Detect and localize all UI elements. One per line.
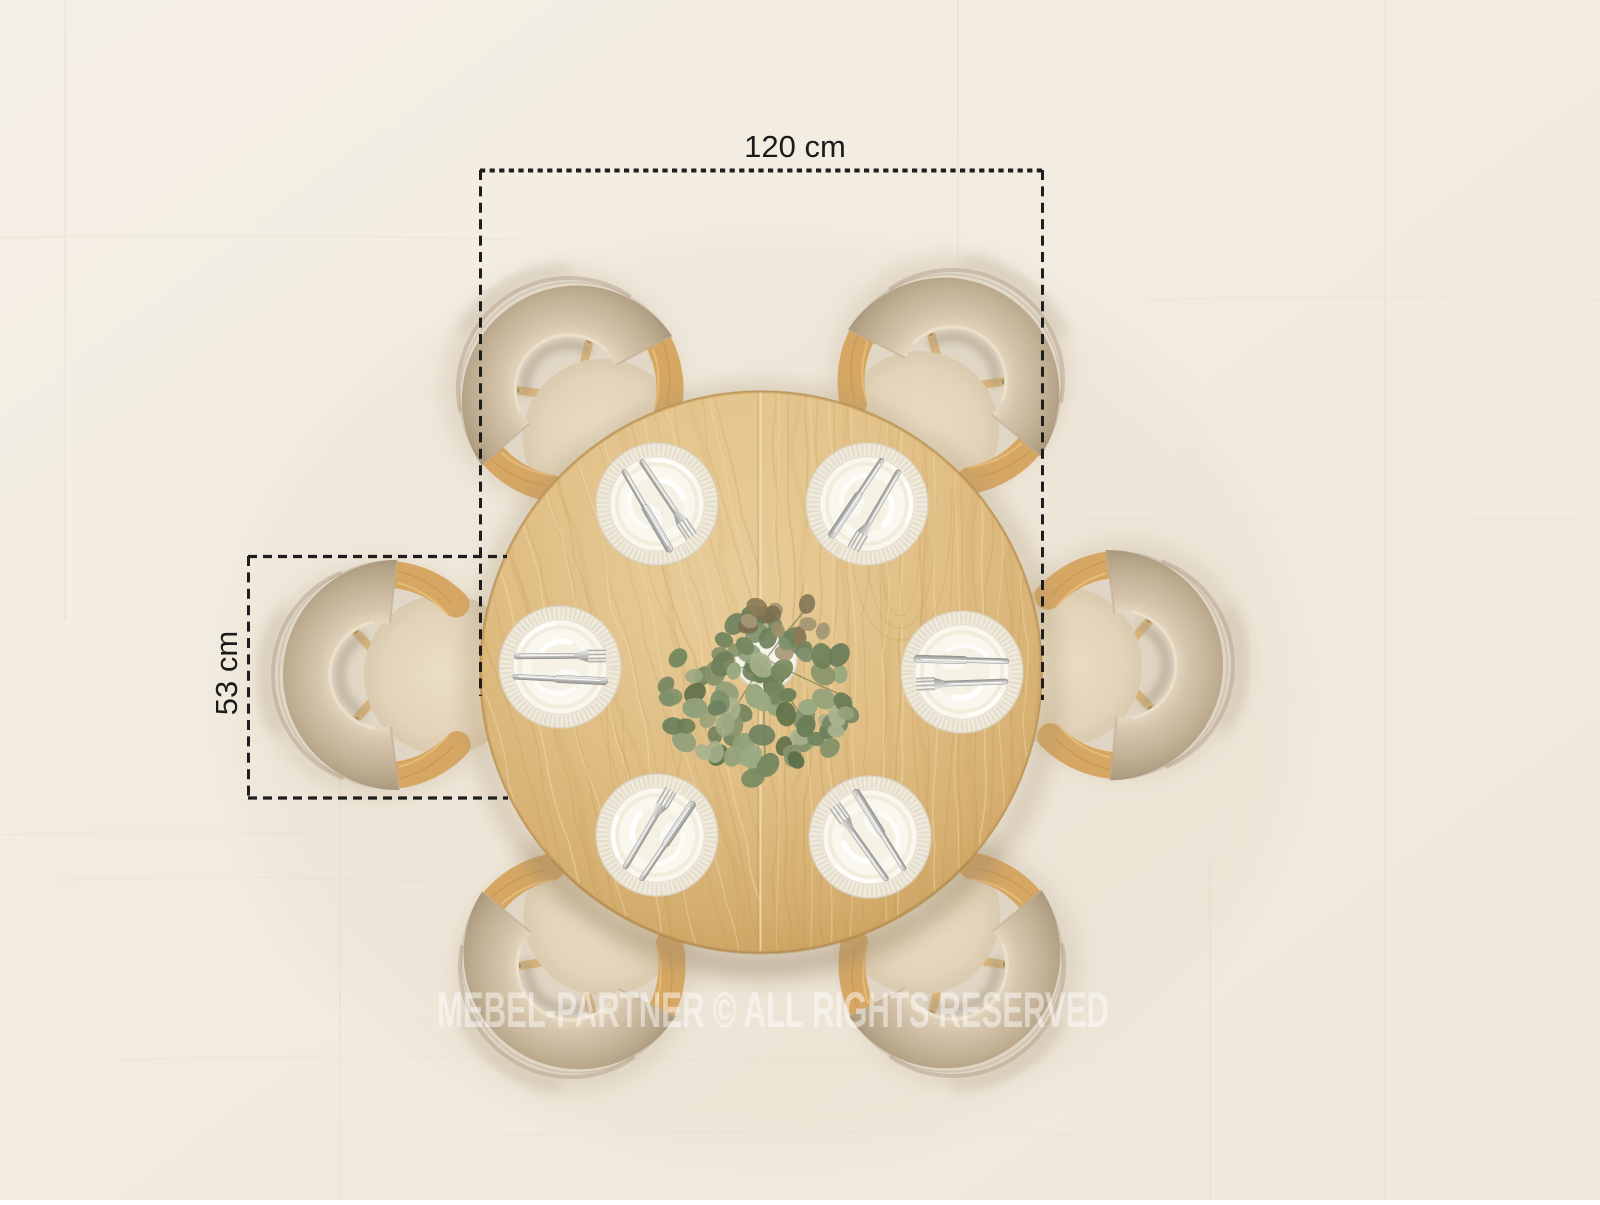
svg-text:120 cm: 120 cm bbox=[744, 129, 846, 164]
svg-text:53 cm: 53 cm bbox=[209, 631, 244, 715]
svg-text:MEBEL-PARTNER © ALL RIGHTS RES: MEBEL-PARTNER © ALL RIGHTS RESERVED bbox=[437, 982, 1109, 1038]
